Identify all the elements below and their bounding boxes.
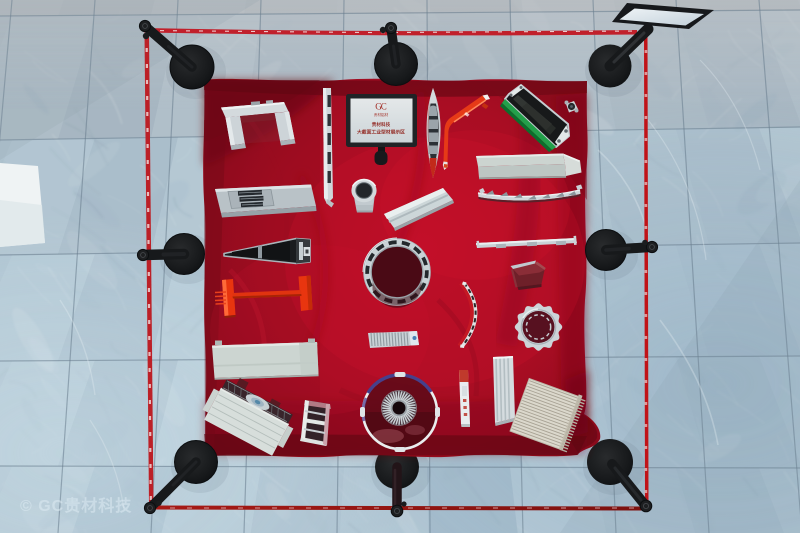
svg-text:大截面工业型材展示区: 大截面工业型材展示区 — [357, 129, 405, 136]
svg-text:© GC贵材科技: © GC贵材科技 — [20, 496, 132, 515]
svg-text:贵材科技: 贵材科技 — [372, 121, 391, 128]
svg-text:贵材铝材: 贵材铝材 — [374, 112, 389, 117]
svg-text:GC: GC — [375, 102, 387, 112]
